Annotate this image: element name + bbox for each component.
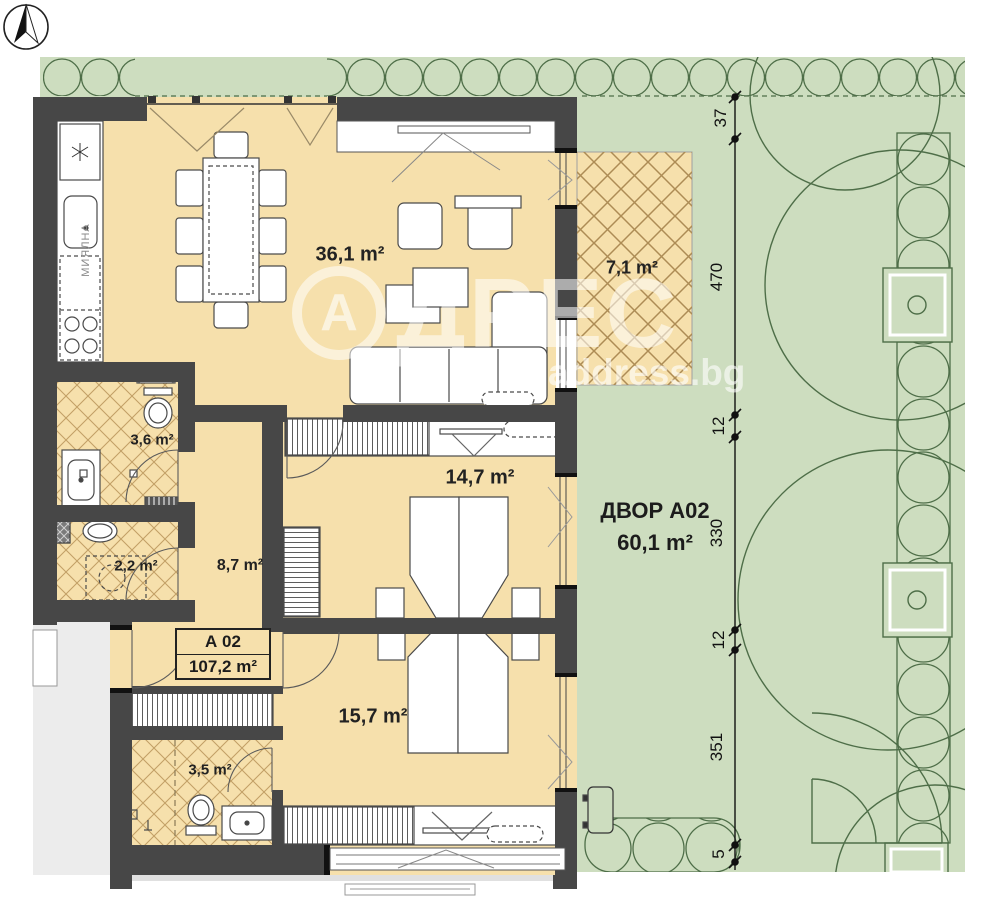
- hall-closet: [283, 527, 320, 617]
- nightstand: [376, 588, 404, 618]
- bed: [410, 497, 508, 618]
- terrace-door-leaf: [455, 196, 521, 208]
- armchair: [398, 203, 442, 249]
- toilet-icon: [144, 388, 172, 428]
- north-arrow-icon: [4, 4, 48, 49]
- ottoman: [482, 392, 534, 406]
- living-room-area-label: 36,1 m²: [316, 244, 385, 267]
- washbasin-icon: [83, 520, 117, 542]
- wardrobe: [285, 418, 575, 456]
- yard-area: 60,1 m²: [600, 527, 709, 559]
- chair: [214, 132, 248, 158]
- dimension-value: 470: [707, 263, 727, 291]
- dimension-value: 330: [707, 519, 727, 547]
- floorplan-graphics: [0, 0, 1000, 921]
- coffee-table: [413, 268, 468, 307]
- window: [330, 848, 565, 870]
- dimension-value: 351: [707, 733, 727, 761]
- chair: [259, 218, 286, 254]
- dimension-value: 5: [709, 849, 729, 858]
- stove-icon: [60, 310, 100, 360]
- dimension-value: 37: [711, 109, 731, 128]
- yard-title: ДВОР А02: [600, 495, 709, 527]
- hall-area-label: 8,7 m²: [217, 557, 263, 575]
- nightstand: [378, 632, 405, 660]
- bed: [408, 632, 508, 753]
- chair: [259, 170, 286, 206]
- wardrobe: [283, 806, 571, 845]
- chair: [214, 302, 248, 328]
- washbasin-icon: [62, 450, 100, 510]
- chair: [259, 266, 286, 302]
- armchair: [468, 203, 512, 249]
- bathroom-area-label: 3,6 m²: [130, 432, 173, 449]
- terrace-area-label: 7,1 m²: [606, 258, 658, 279]
- washbasin-icon: [222, 806, 272, 840]
- bedroom2-area-label: 15,7 m²: [339, 706, 408, 729]
- yard-label: ДВОР А02 60,1 m²: [600, 495, 709, 559]
- nightstand: [512, 588, 540, 618]
- apartment-label-box: А 02 107,2 m²: [175, 628, 271, 680]
- window: [556, 320, 576, 388]
- bedroom1-area-label: 14,7 m²: [446, 467, 515, 490]
- right-hedge-row: [897, 133, 950, 843]
- entrance-niche: [33, 630, 57, 686]
- wc-area-label: 2,2 m²: [114, 558, 157, 575]
- chair: [176, 266, 203, 302]
- dimension-value: 12: [709, 631, 729, 650]
- apartment-id: А 02: [177, 630, 269, 654]
- dishwasher-label: МИЯЛНА: [80, 223, 92, 277]
- bathroom2-area-label: 3,5 m²: [188, 762, 231, 779]
- chair: [176, 218, 203, 254]
- nightstand: [512, 632, 539, 660]
- lower-floor-cutoff: [110, 875, 577, 895]
- fixture: [80, 470, 87, 477]
- apartment-area: 107,2 m²: [177, 654, 269, 679]
- ac-unit: [583, 787, 613, 833]
- dimension-value: 12: [709, 417, 729, 436]
- floorplan-page: 36,1 m² 7,1 m² 3,6 m² 2,2 m² 8,7 m² 14,7…: [0, 0, 1000, 921]
- chair: [176, 170, 203, 206]
- toilet-icon: [186, 795, 216, 835]
